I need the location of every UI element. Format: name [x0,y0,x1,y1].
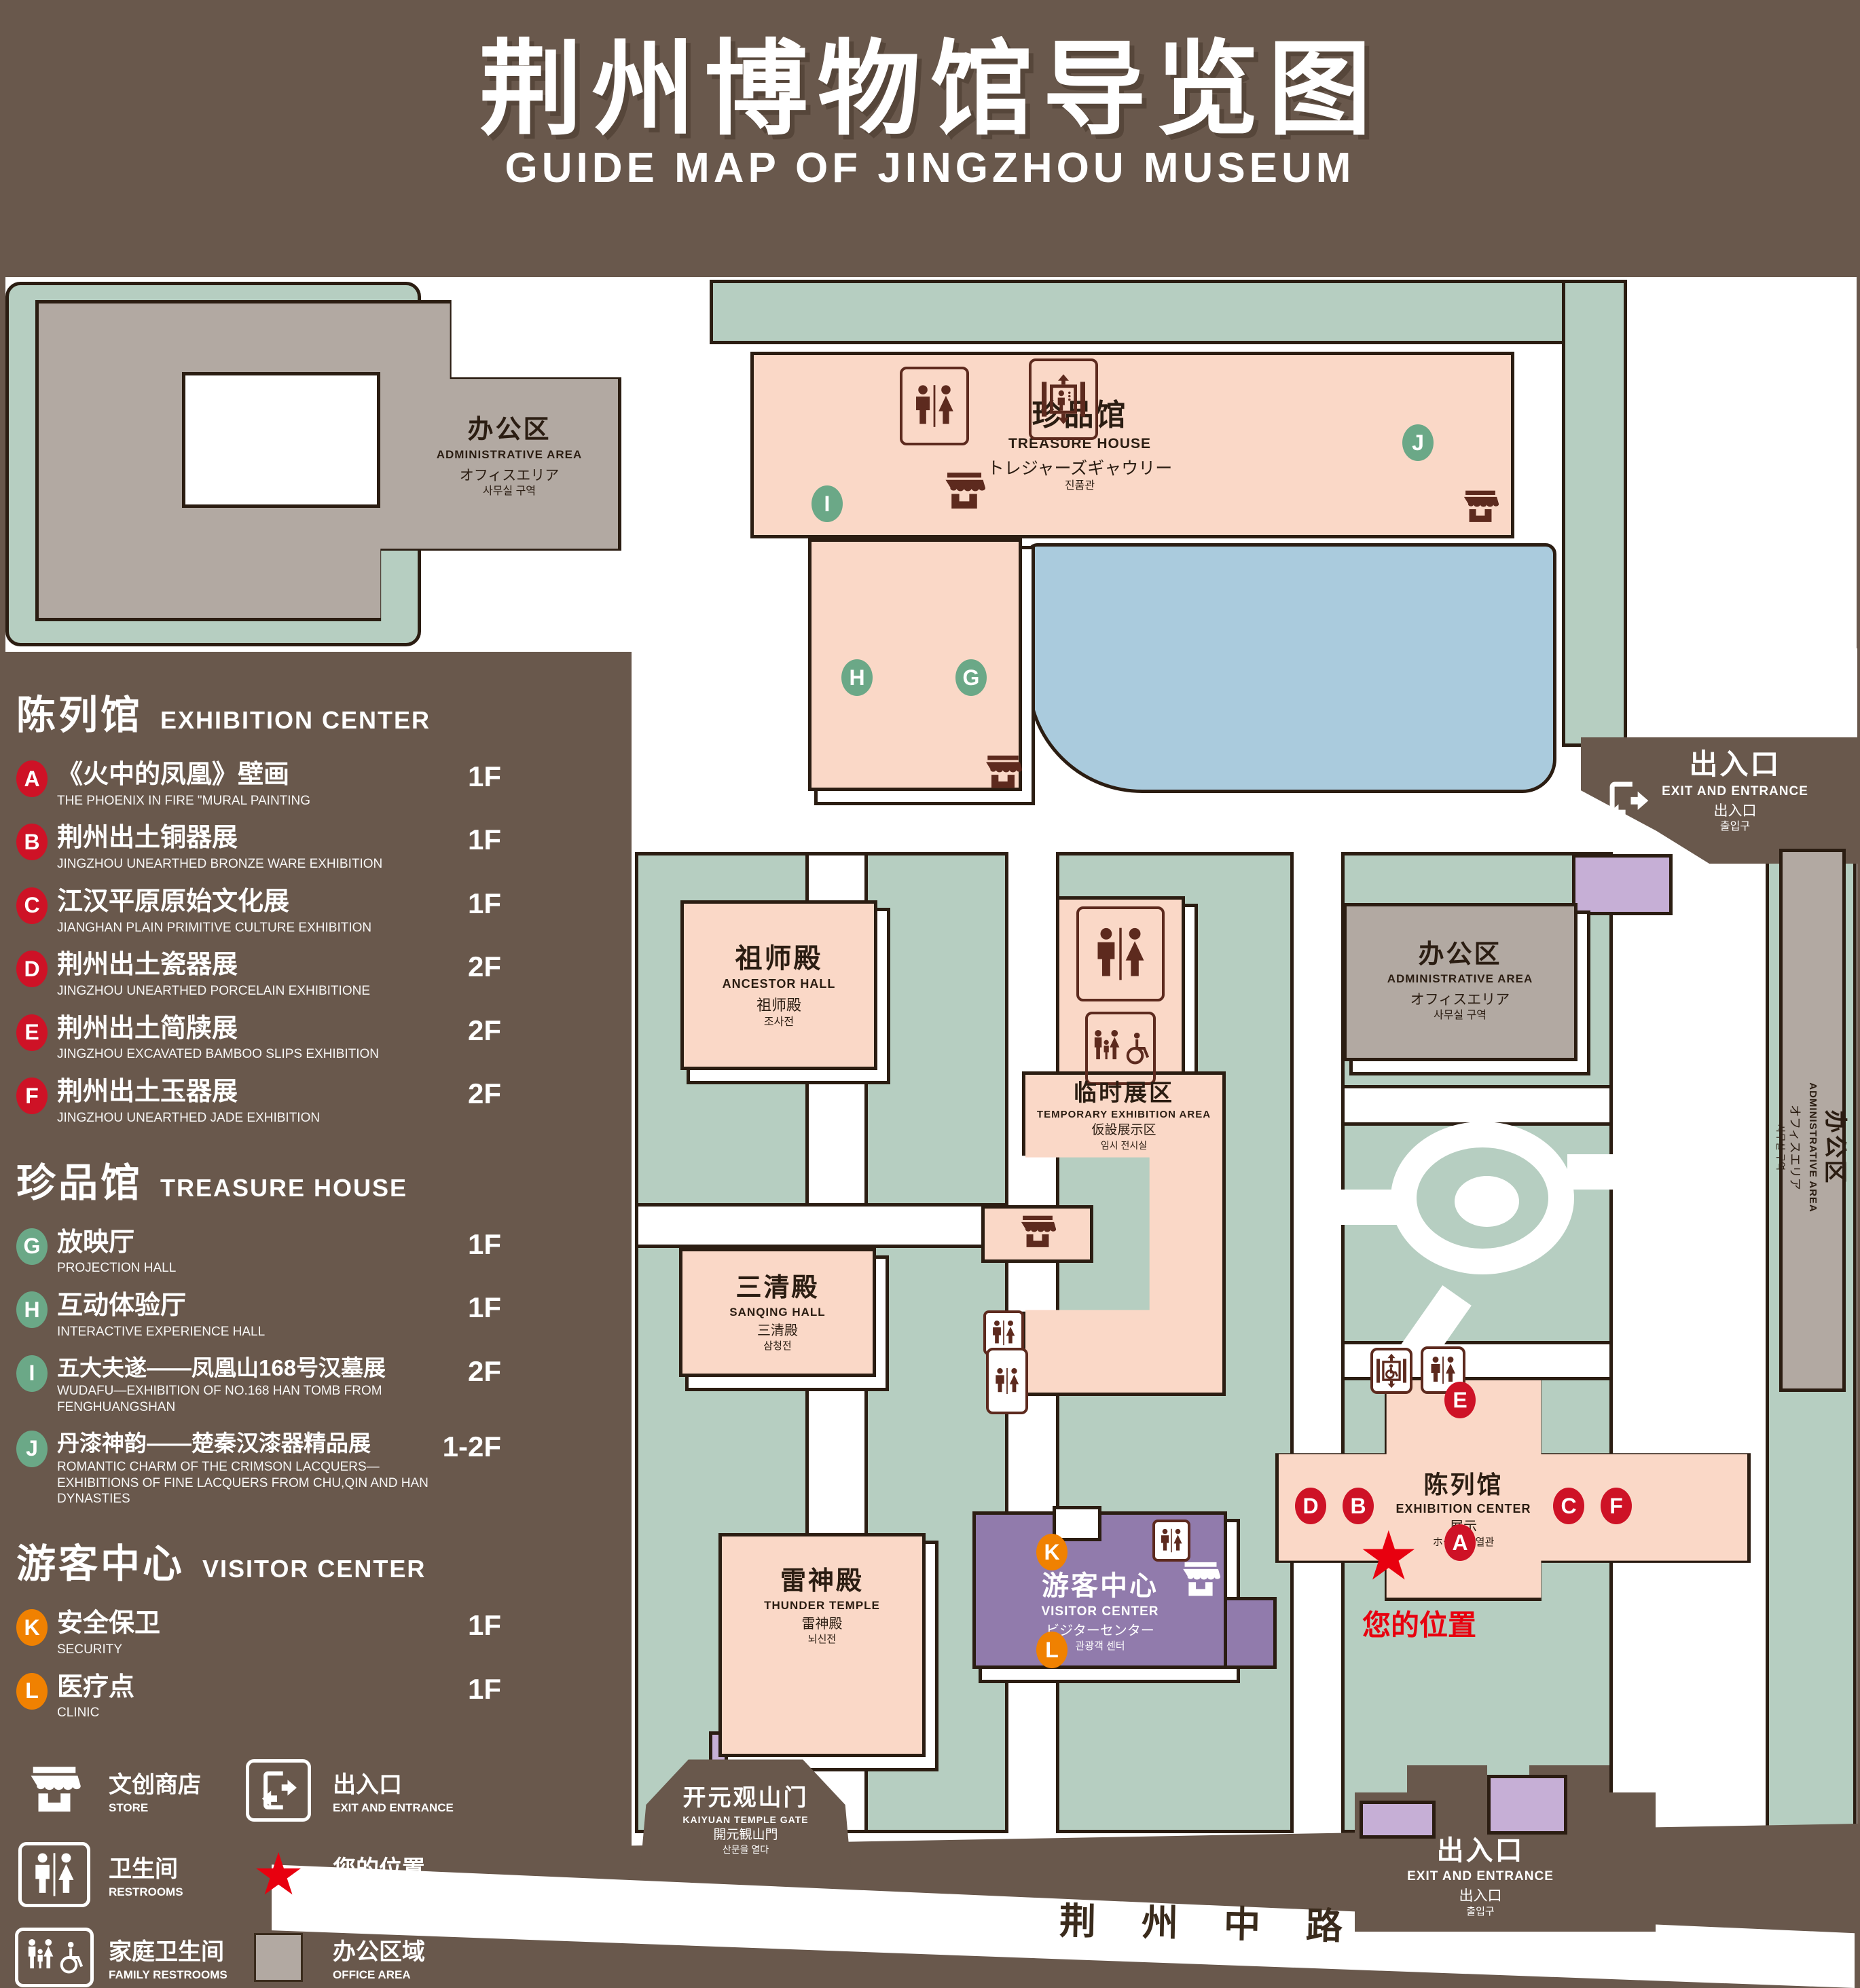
garden-spur-east [1567,1154,1615,1190]
exit-icon [240,1759,316,1822]
legend-section-exhibition-center: 陈列馆 EXHIBITION CENTER [16,683,501,740]
legend-item-B: B 荆州出土铜器展 JINGZHOU UNEARTHED BRONZE WARE… [16,824,501,872]
page-title: 荆州博物馆导览图 [0,5,1860,155]
your-location-star: ★ [1358,1522,1419,1590]
exit-south-label: 出入口 EXIT AND ENTRANCE 出入口 출입구 [1385,1828,1575,1924]
map-marker-I: I [812,485,843,522]
symbol-your-location: ★ 您的位置 YOUR LOCATION [240,1842,501,1907]
store-icon [1180,1562,1221,1598]
building-near-south-exit-east [1487,1775,1567,1835]
guide-map-canvas: 荆州博物馆导览图 GUIDE MAP OF JINGZHOU MUSEUM 办公… [0,0,1860,1988]
visitor-center-annex [1224,1597,1277,1669]
marker-D: D [16,951,48,987]
map-marker-H: H [841,659,873,696]
sanqing-hall-label: 三清殿 SANQING HALL 三清殿 삼청전 [686,1251,869,1374]
your-location-text: 您的位置 [1324,1602,1514,1644]
floor-label: 2F [436,951,501,983]
legend-item-I: I 五大夫遂——凤凰山168号汉墓展 WUDAFU—EXHIBITION OF … [16,1355,501,1416]
map-marker-G: G [955,659,987,696]
garden-spur-west [1296,1190,1398,1225]
treasure-house-lower [808,538,1022,791]
map-marker-A: A [1444,1524,1476,1561]
exit-south-corridor-west [1407,1765,1487,1806]
legend-section-visitor-center: 游客中心 VISITOR CENTER [16,1532,501,1589]
exit-icon [1603,779,1652,828]
marker-G: G [16,1228,48,1265]
legend-item-H: H 互动体验厅 INTERACTIVE EXPERIENCE HALL 1F [16,1291,501,1340]
legend-panel: 陈列馆 EXHIBITION CENTER A 《火中的凤凰》壁画 THE PH… [16,674,501,1988]
restroom-icon [986,1348,1028,1414]
legend-item-E: E 荆州出土简牍展 JINGZHOU EXCAVATED BAMBOO SLIP… [16,1014,501,1063]
kaiyuan-gate-label: 开元观山门 KAIYUAN TEMPLE GATE 開元観山門 산문을 열다 [653,1768,838,1871]
floor-label: 1F [436,887,501,920]
legend-item-K: K 安全保卫 SECURITY 1F [16,1609,501,1657]
floor-label: 2F [436,1014,501,1047]
lawn-northeast-arm [1562,280,1627,747]
legend-item-D: D 荆州出土瓷器展 JINGZHOU UNEARTHED PORCELAIN E… [16,951,501,999]
legend-item-J: J 丹漆神韵——楚秦汉漆器精品展 ROMANTIC CHARM OF THE C… [16,1431,501,1507]
admin-northwest-label: 办公区 ADMINISTRATIVE AREA オフィスエリア 사무실 구역 [407,375,611,538]
floor-label: 1F [436,1228,501,1261]
elevator-icon [1029,358,1098,440]
temporary-exhibition-label: 临时展区 TEMPORARY EXHIBITION AREA 仮設展示区 임시 … [1022,1077,1226,1153]
path-horizontal-east-1 [1341,1085,1613,1126]
lawn-north-strip [710,280,1623,344]
map-marker-C: C [1553,1488,1584,1524]
garden-pond [1455,1176,1519,1227]
admin-mid-east-label: 办公区 ADMINISTRATIVE AREA オフィスエリア 사무실 구역 [1351,911,1569,1050]
map-marker-F: F [1601,1488,1632,1524]
legend-item-L: L 医疗点 CLINIC 1F [16,1673,501,1721]
family-restroom-icon [16,1928,92,1987]
floor-label: 1-2F [436,1431,501,1463]
exit-northeast-label: 出入口 EXIT AND ENTRANCE 出入口 출입구 [1657,743,1813,838]
marker-C: C [16,887,48,924]
legend-item-F: F 荆州出土玉器展 JINGZHOU UNEARTHED JADE EXHIBI… [16,1078,501,1126]
symbol-office-area: 办公区域 OFFICE AREA [240,1928,501,1987]
legend-item-A: A 《火中的凤凰》壁画 THE PHOENIX IN FIRE "MURAL P… [16,760,501,809]
map-marker-E: E [1444,1382,1476,1418]
family-restroom-icon [1085,1012,1156,1085]
accessible-elevator-icon [1370,1348,1412,1394]
store-icon [943,472,986,511]
path-horizontal-west [635,1203,1008,1248]
store-icon [16,1767,92,1814]
legend-section-treasure-house: 珍品馆 TREASURE HOUSE [16,1151,501,1208]
store-icon [1461,490,1499,524]
marker-I: I [16,1355,48,1392]
restroom-icon [1076,906,1165,1001]
map-marker-J: J [1402,424,1434,461]
building-near-northeast-exit [1572,854,1673,915]
page-subtitle: GUIDE MAP OF JINGZHOU MUSEUM [0,144,1860,192]
floor-label: 1F [436,1673,501,1706]
map-marker-L: L [1036,1632,1068,1668]
floor-label: 1F [436,1291,501,1324]
map-marker-K: K [1036,1534,1068,1570]
restroom-icon [1152,1520,1190,1562]
floor-label: 2F [436,1078,501,1110]
map-marker-D: D [1295,1488,1326,1524]
symbol-exit: 出入口 EXIT AND ENTRANCE [240,1759,501,1822]
visitor-center-label: 游客中心 VISITOR CENTER ビジターセンター 관광객 센터 [998,1559,1202,1662]
floor-label: 1F [436,1609,501,1642]
symbol-family-restrooms: 家庭卫生间 FAMILY RESTROOMS [16,1928,240,1987]
symbol-restrooms: 卫生间 RESTROOMS [16,1842,240,1907]
symbol-store: 文创商店 STORE [16,1759,240,1822]
marker-A: A [16,760,48,797]
office-area-swatch [254,1933,303,1982]
legend-symbols: 文创商店 STORE 出入口 EXIT AND ENTRANCE 卫生间 RES… [16,1759,501,1988]
ancestor-hall-label: 祖师殿 ANCESTOR HALL 祖师殿 조사전 [687,907,871,1063]
legend-item-C: C 江汉平原原始文化展 JIANGHAN PLAIN PRIMITIVE CUL… [16,887,501,936]
floor-label: 1F [436,760,501,793]
legend-item-G: G 放映厅 PROJECTION HALL 1F [16,1228,501,1276]
marker-H: H [16,1291,48,1328]
your-location-star-icon: ★ [240,1845,316,1904]
admin-east-label: 办公区 ADMINISTRATIVE AREA オフィスエリア 사무실 구역 [1764,1046,1859,1249]
marker-F: F [16,1078,48,1114]
marker-L: L [16,1673,48,1710]
floor-label: 2F [436,1355,501,1388]
admin-northwest-courtyard [182,372,380,508]
store-icon [983,755,1023,790]
restroom-icon [900,367,969,445]
marker-B: B [16,824,48,860]
marker-E: E [16,1014,48,1051]
restroom-icon [16,1842,92,1907]
marker-J: J [16,1431,48,1467]
thunder-temple-label: 雷神殿 THUNDER TEMPLE 雷神殿 뇌신전 [725,1541,919,1670]
marker-K: K [16,1609,48,1646]
floor-label: 1F [436,824,501,856]
store-icon [1019,1215,1057,1249]
lake [1027,543,1556,793]
